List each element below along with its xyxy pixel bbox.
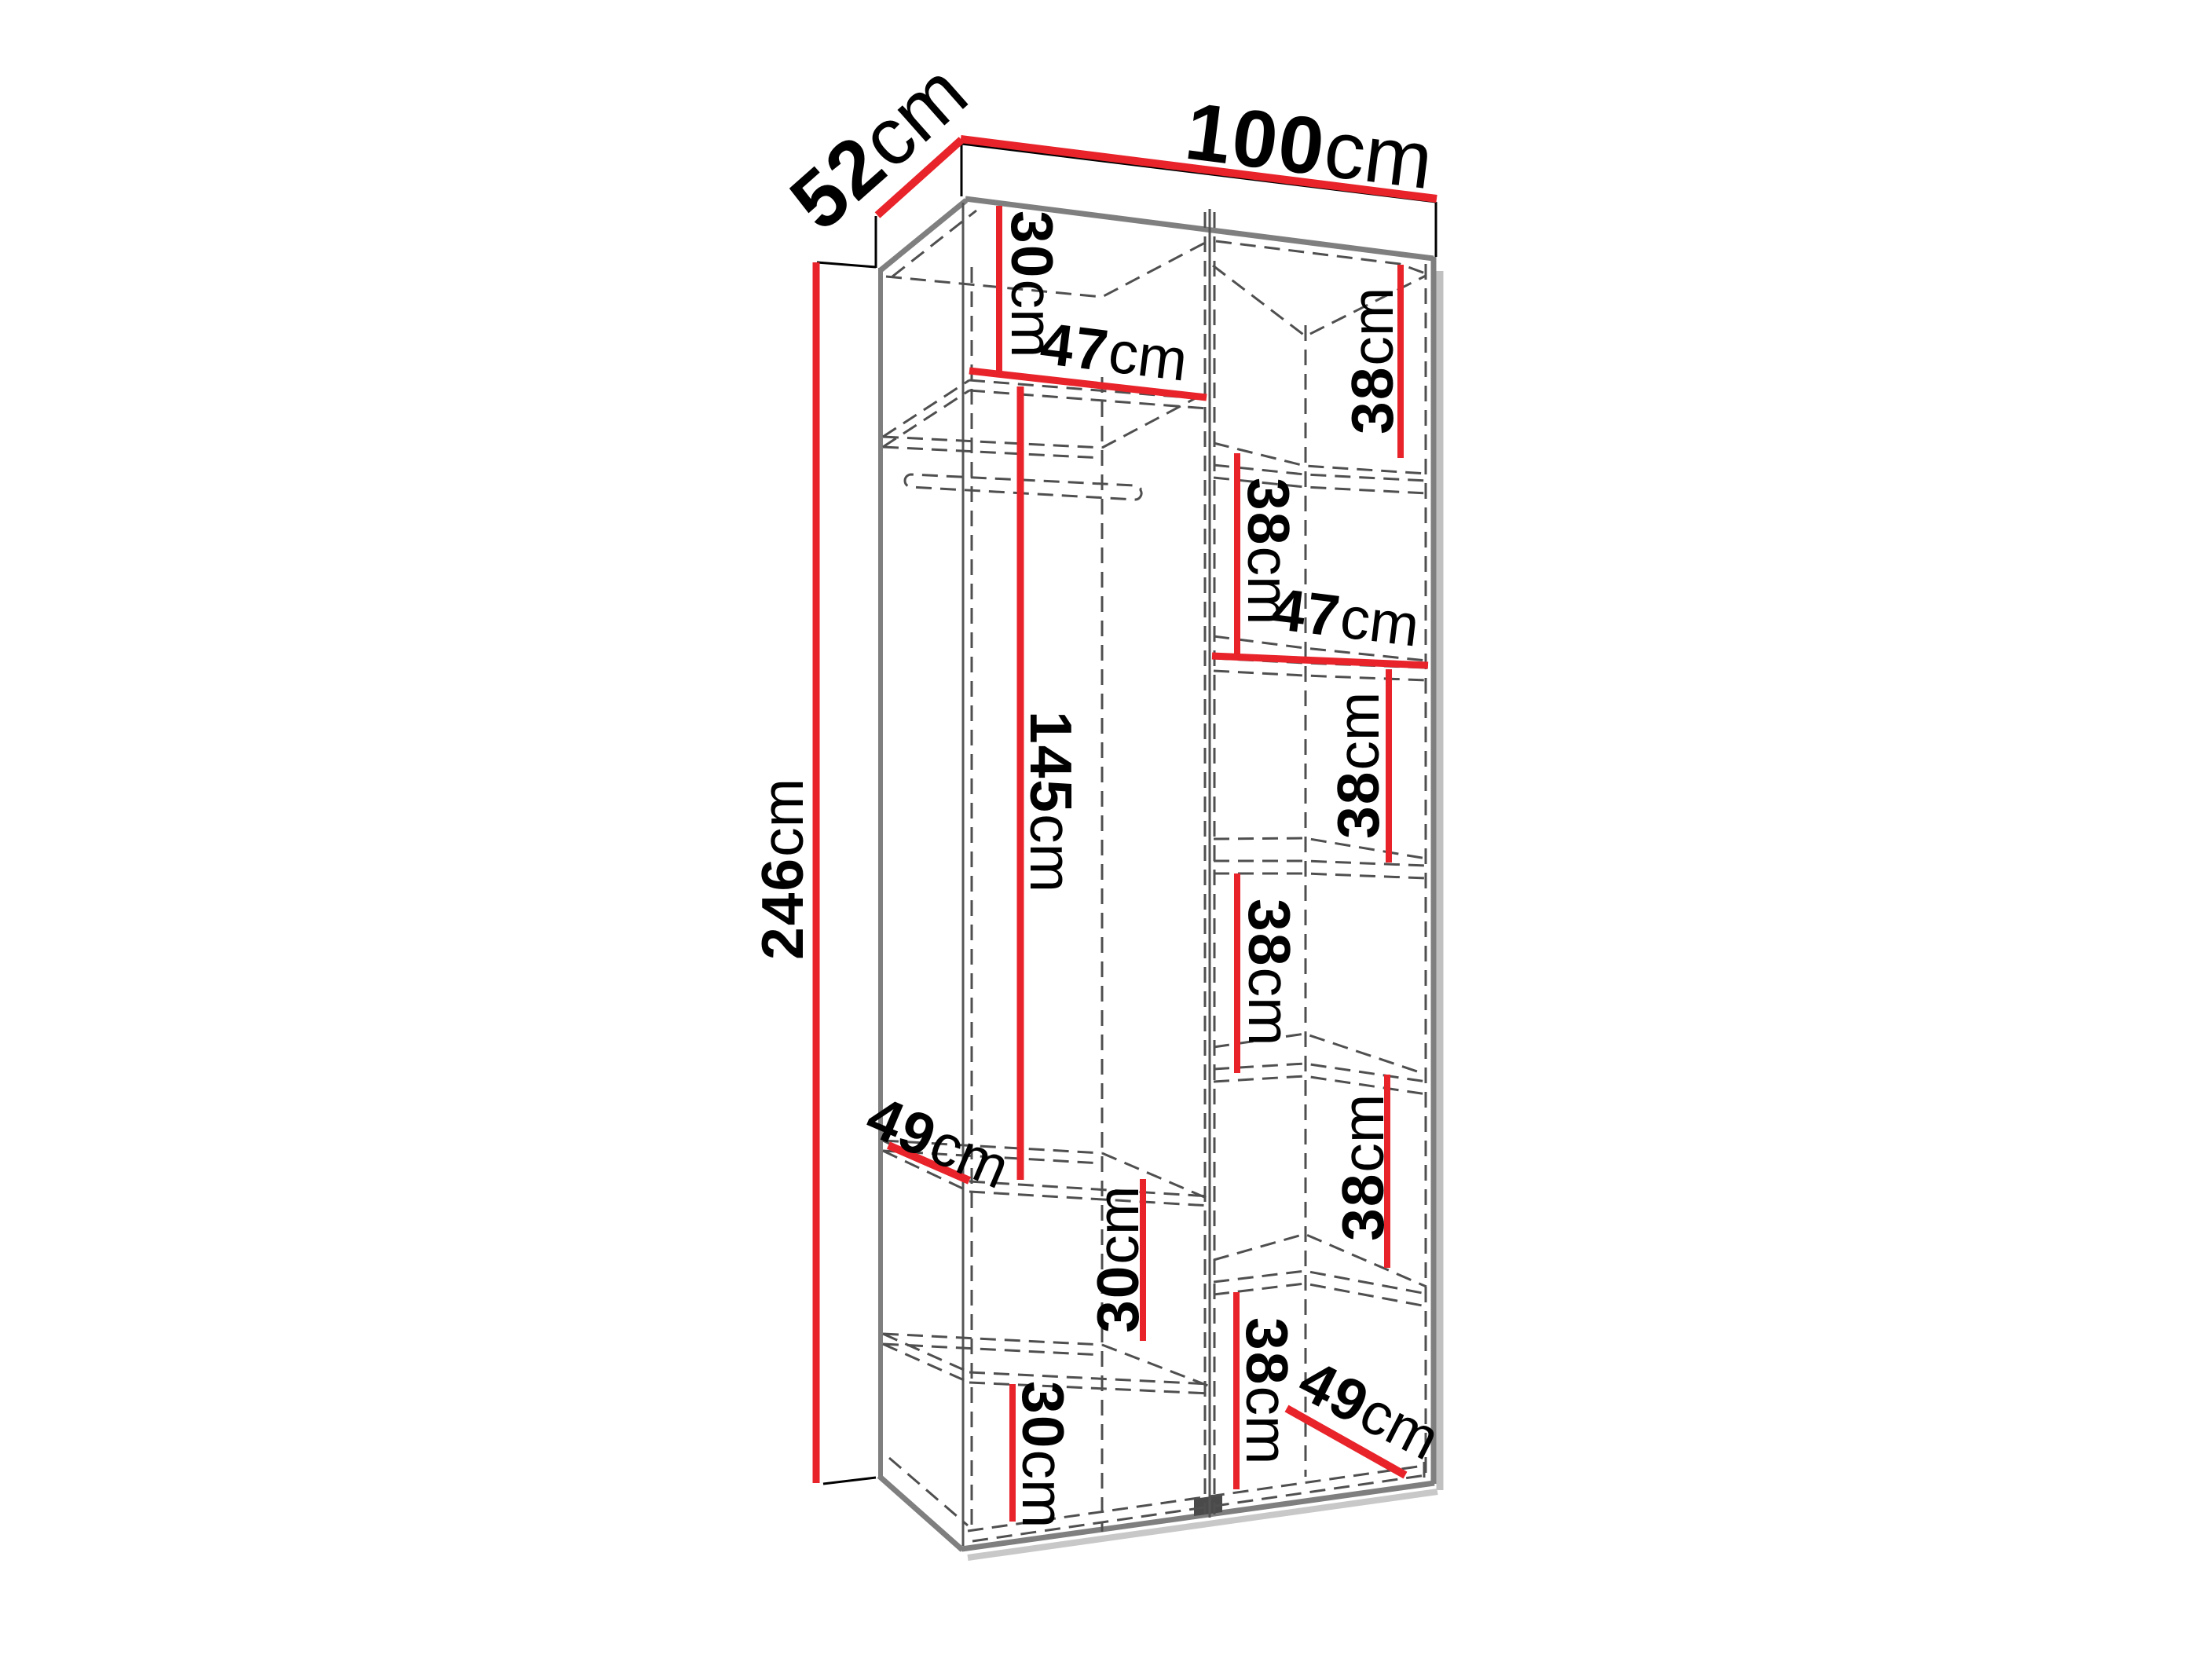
- svg-text:38cm: 38cm: [1325, 692, 1391, 839]
- svg-text:38cm: 38cm: [1234, 1317, 1300, 1464]
- svg-text:30cm: 30cm: [1085, 1186, 1151, 1333]
- svg-text:38cm: 38cm: [1339, 287, 1405, 434]
- svg-text:38cm: 38cm: [1330, 1094, 1396, 1241]
- svg-text:246cm: 246cm: [749, 778, 815, 960]
- svg-text:30cm: 30cm: [1010, 1381, 1076, 1528]
- svg-text:145cm: 145cm: [1018, 711, 1084, 892]
- svg-text:38cm: 38cm: [1236, 899, 1302, 1046]
